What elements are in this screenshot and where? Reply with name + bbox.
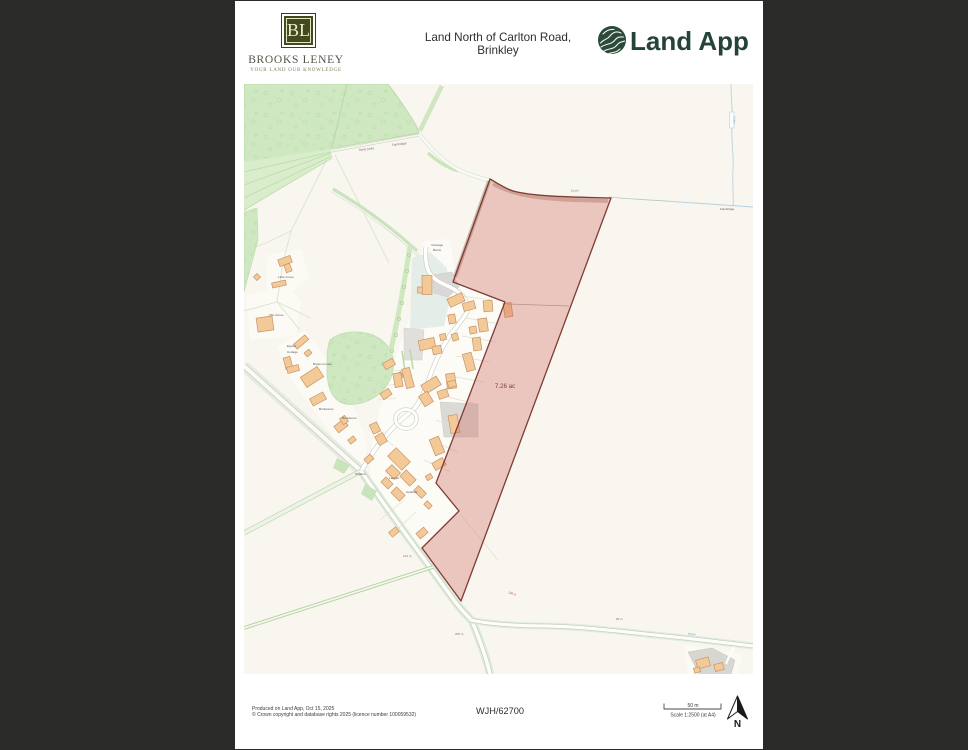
svg-text:Lanight: Lanight (389, 476, 399, 480)
svg-text:50 m: 50 m (687, 703, 698, 709)
svg-text:Little Grove: Little Grove (278, 275, 294, 279)
svg-text:The Grove: The Grove (269, 313, 284, 317)
svg-text:Cottage: Cottage (287, 350, 298, 354)
svg-text:7.26 ac: 7.26 ac (495, 383, 515, 390)
svg-text:Barns: Barns (433, 248, 442, 252)
svg-text:83 m: 83 m (616, 617, 623, 621)
svg-text:Egmar: Egmar (287, 344, 296, 348)
svg-text:Vicarage: Vicarage (431, 243, 443, 247)
svg-text:Fambridge: Fambridge (720, 207, 735, 211)
svg-text:Blyden house: Blyden house (313, 362, 332, 366)
svg-text:Drain: Drain (571, 189, 579, 193)
svg-text:Scale 1:2500 (at A4): Scale 1:2500 (at A4) (670, 713, 716, 719)
svg-text:Uplands: Uplands (406, 490, 418, 494)
svg-text:Land App: Land App (630, 26, 749, 56)
svg-text:Shaftus: Shaftus (355, 472, 366, 476)
svg-text:Brinkstone: Brinkstone (319, 407, 334, 411)
svg-text:Drain: Drain (733, 116, 737, 124)
svg-text:Residence: Residence (342, 416, 357, 420)
svg-text:N: N (734, 719, 741, 730)
svg-text:214 m: 214 m (403, 554, 412, 558)
svg-text:206 m: 206 m (455, 632, 464, 636)
